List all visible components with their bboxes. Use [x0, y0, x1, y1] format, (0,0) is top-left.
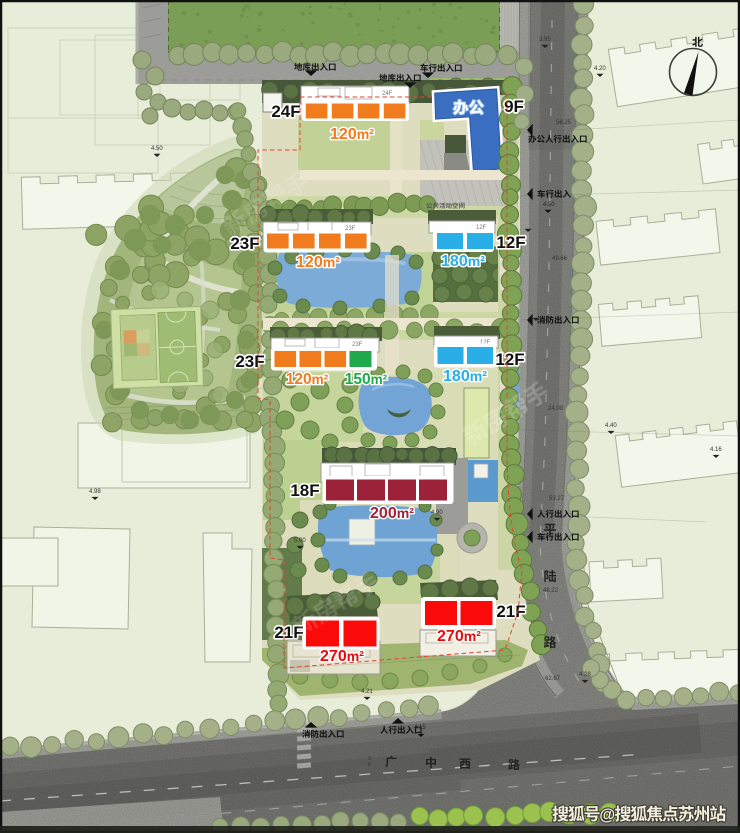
- svg-text:21F: 21F: [274, 623, 303, 642]
- svg-text:120m²: 120m²: [296, 254, 340, 271]
- svg-text:12F: 12F: [495, 350, 524, 369]
- svg-text:180m²: 180m²: [443, 368, 487, 385]
- svg-text:4.50: 4.50: [543, 202, 555, 208]
- svg-text:4.40: 4.40: [605, 423, 617, 429]
- svg-text:23F: 23F: [230, 234, 259, 253]
- svg-text:53.27: 53.27: [549, 496, 565, 502]
- svg-text:3.95: 3.95: [539, 37, 551, 43]
- svg-text:8: 8: [368, 762, 371, 768]
- svg-text:150m²: 150m²: [345, 371, 388, 388]
- svg-text:200m²: 200m²: [370, 505, 414, 522]
- svg-text:23F: 23F: [352, 342, 363, 348]
- svg-text:4.16: 4.16: [710, 447, 722, 453]
- svg-text:4.90: 4.90: [431, 510, 443, 516]
- svg-text:4.28: 4.28: [579, 672, 591, 678]
- svg-text:4.50: 4.50: [151, 146, 163, 152]
- svg-text:@: @: [599, 806, 615, 824]
- svg-text:56.25: 56.25: [556, 120, 572, 126]
- svg-text:23F: 23F: [235, 352, 264, 371]
- svg-text:48.22: 48.22: [543, 588, 559, 594]
- svg-text:12F: 12F: [496, 233, 525, 252]
- svg-text:4.21: 4.21: [361, 689, 373, 695]
- svg-text:24F: 24F: [382, 91, 393, 97]
- svg-text:120m²: 120m²: [330, 126, 374, 143]
- svg-text:24F: 24F: [271, 102, 300, 121]
- svg-text:18F: 18F: [290, 481, 319, 500]
- svg-text:120m²: 120m²: [286, 371, 329, 388]
- svg-text:4.20: 4.20: [594, 66, 606, 72]
- svg-text:270m²: 270m²: [437, 628, 481, 645]
- svg-text:5.00: 5.00: [294, 538, 306, 544]
- svg-text:4.15: 4.15: [414, 725, 426, 731]
- svg-text:24.00: 24.00: [548, 406, 564, 412]
- svg-text:62.67: 62.67: [545, 676, 561, 682]
- svg-text:21F: 21F: [496, 602, 525, 621]
- svg-text:49.66: 49.66: [552, 256, 568, 262]
- svg-text:4.98: 4.98: [89, 489, 101, 495]
- svg-text:180m²: 180m²: [441, 253, 485, 270]
- svg-text:9F: 9F: [504, 97, 524, 116]
